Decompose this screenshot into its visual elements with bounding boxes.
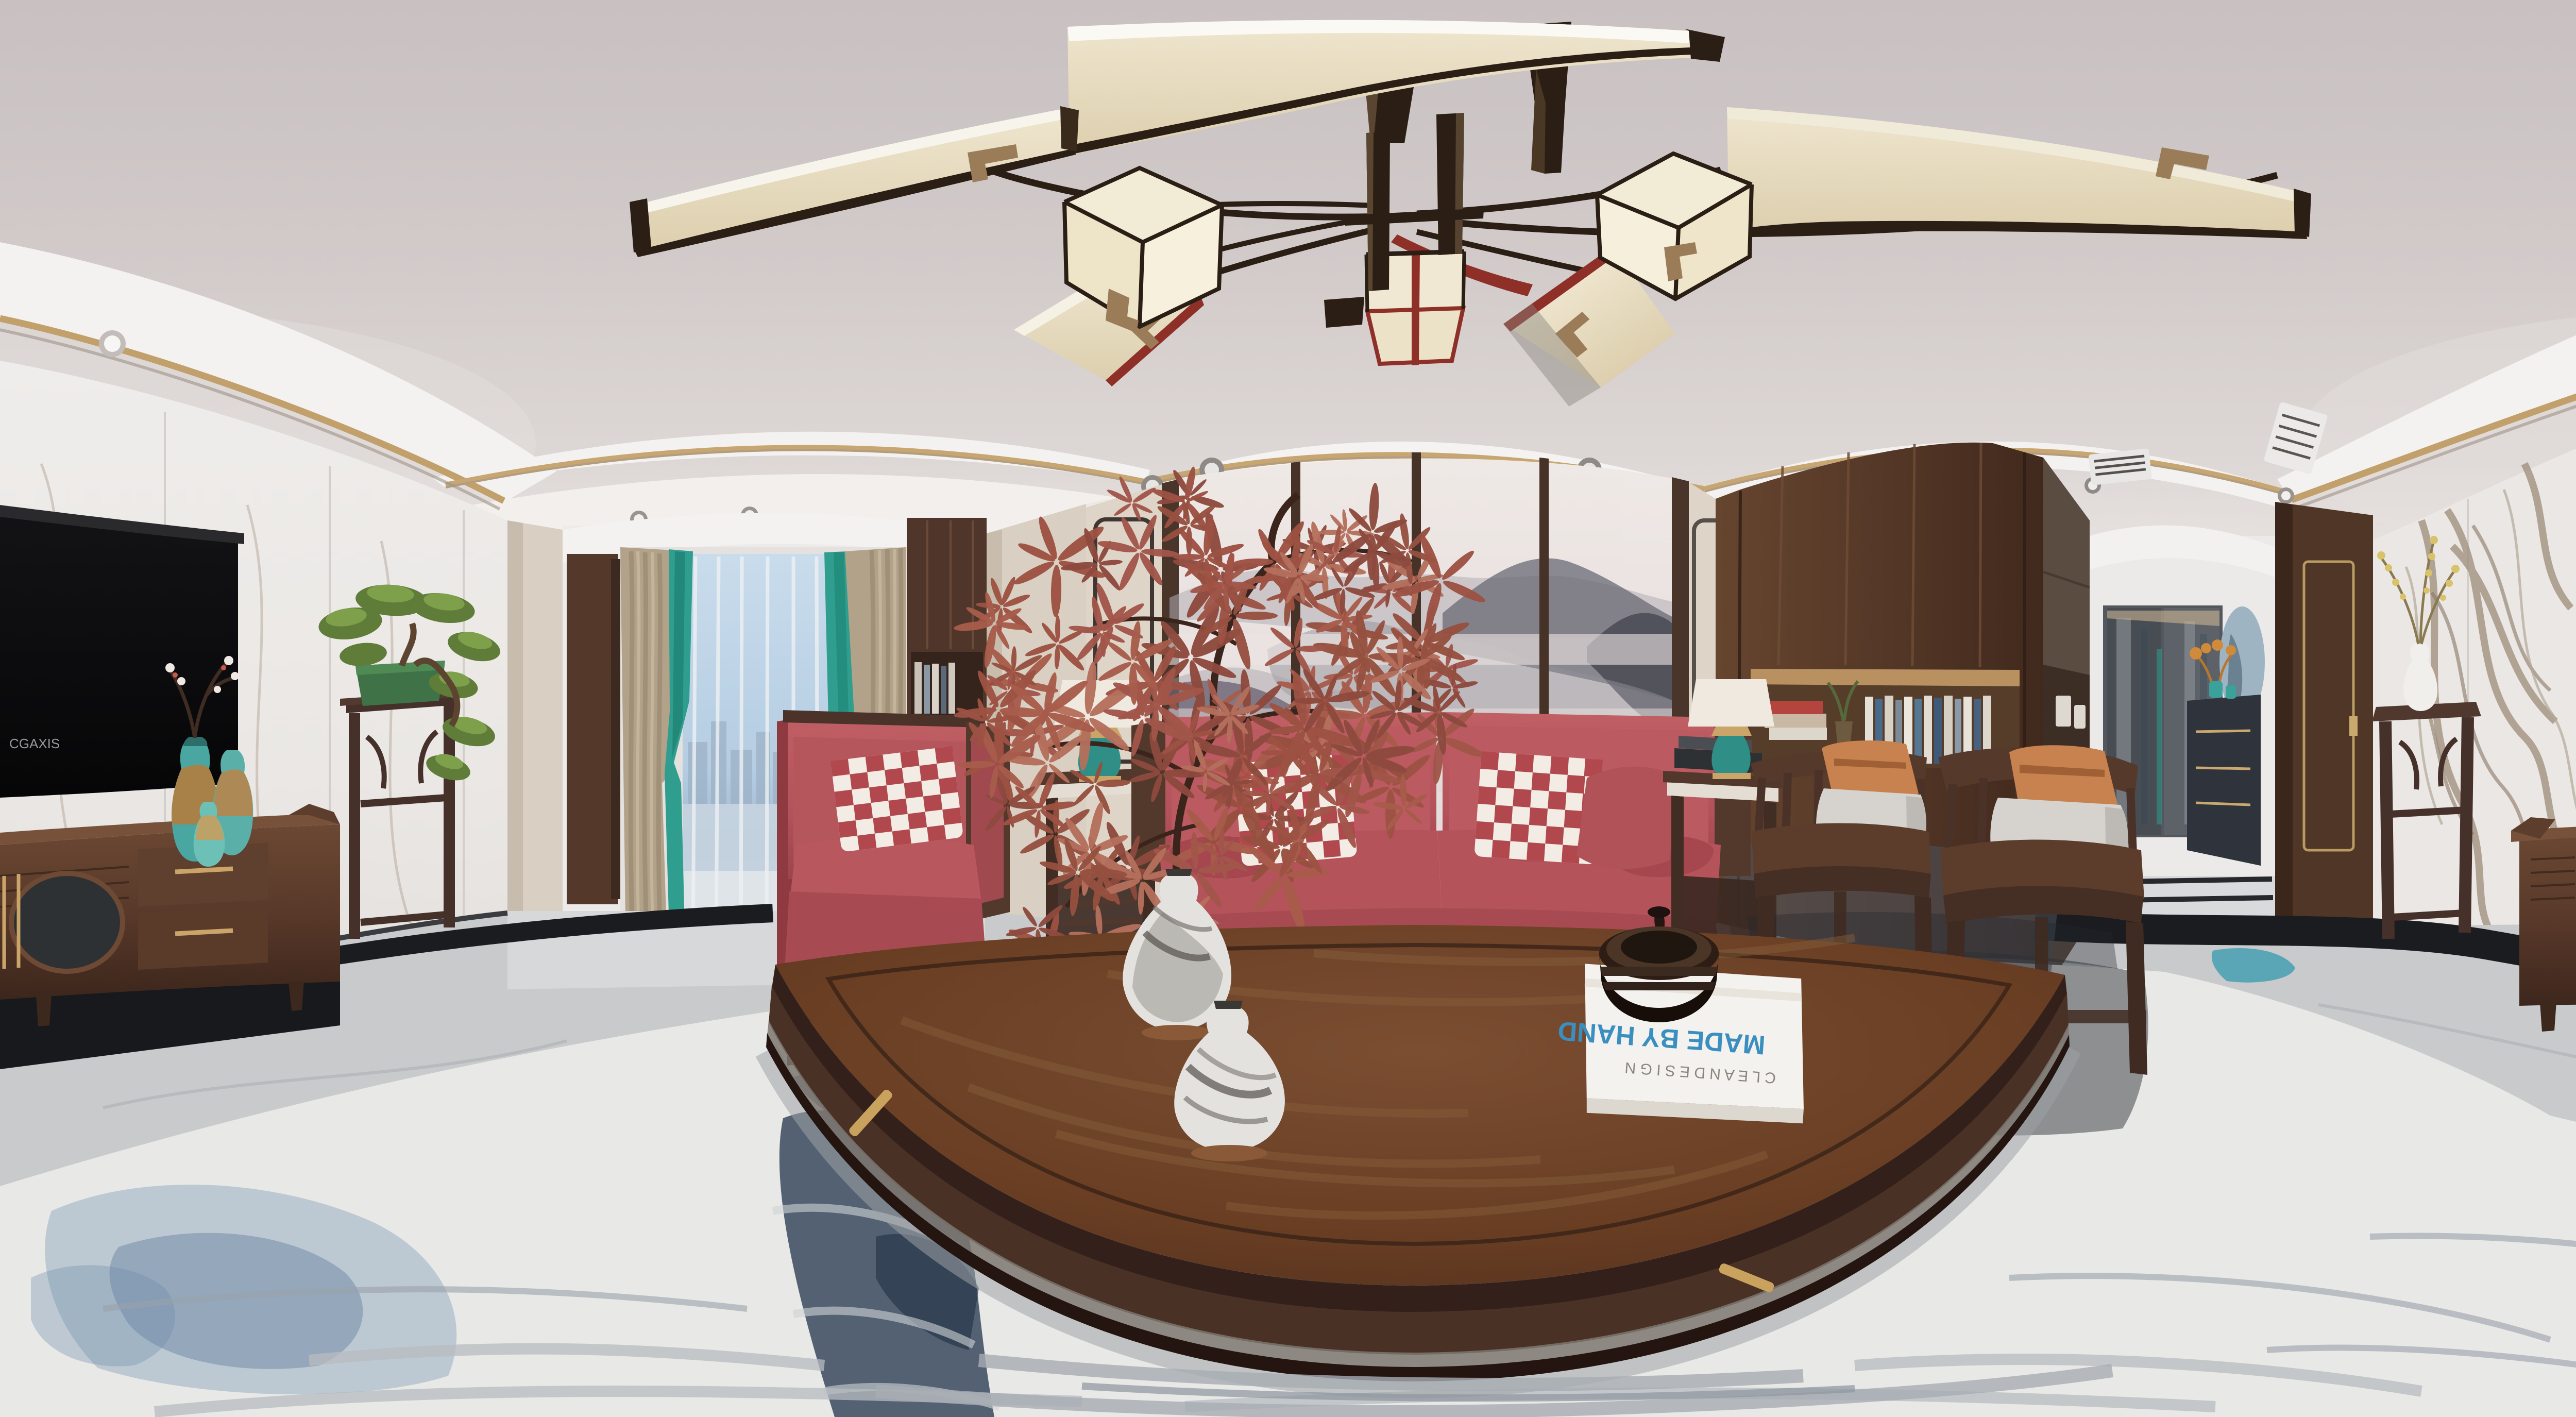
svg-text:CGAXIS: CGAXIS	[9, 736, 60, 751]
